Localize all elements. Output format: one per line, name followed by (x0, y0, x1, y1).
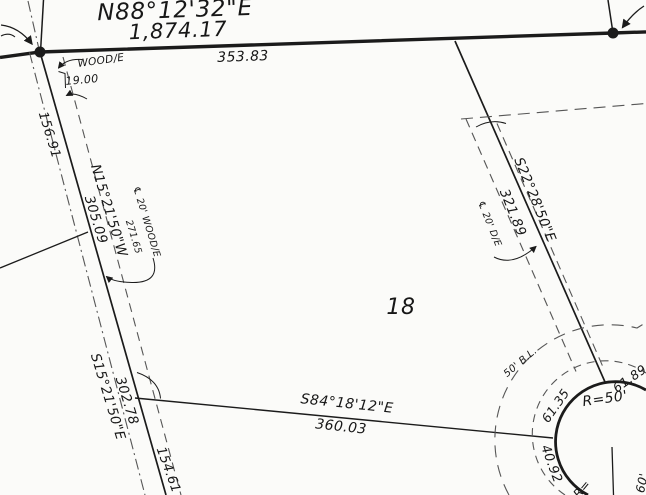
drainage-centerline-leader (494, 247, 536, 261)
west-boundary-line (40, 52, 166, 495)
north-boundary-line (0, 32, 646, 58)
radial-lot-line (612, 447, 614, 495)
label-street-width: 60' (634, 472, 646, 494)
plat-map: N88°12'32"E 1,874.17 353.83 WOOD/E 19.00… (0, 0, 646, 495)
label-offset-19: 19.00 (65, 73, 99, 87)
right-corner-arrow (623, 6, 645, 28)
label-north-total-distance: 1,874.17 (128, 19, 227, 43)
left-adjacent-lot-line (0, 232, 88, 268)
wood-centerline-leader (107, 258, 155, 283)
upper-left-adjacent-line (41, 0, 44, 52)
left-corner-arrow-tail (1, 34, 15, 37)
rear-lot-dashed-line (461, 104, 646, 120)
building-line-arc (495, 323, 646, 495)
upper-right-adjacent-line (608, 0, 613, 33)
label-lot-number: 18 (386, 297, 415, 319)
label-north-segment-distance: 353.83 (217, 49, 269, 65)
offset-19-arrow (67, 94, 88, 99)
